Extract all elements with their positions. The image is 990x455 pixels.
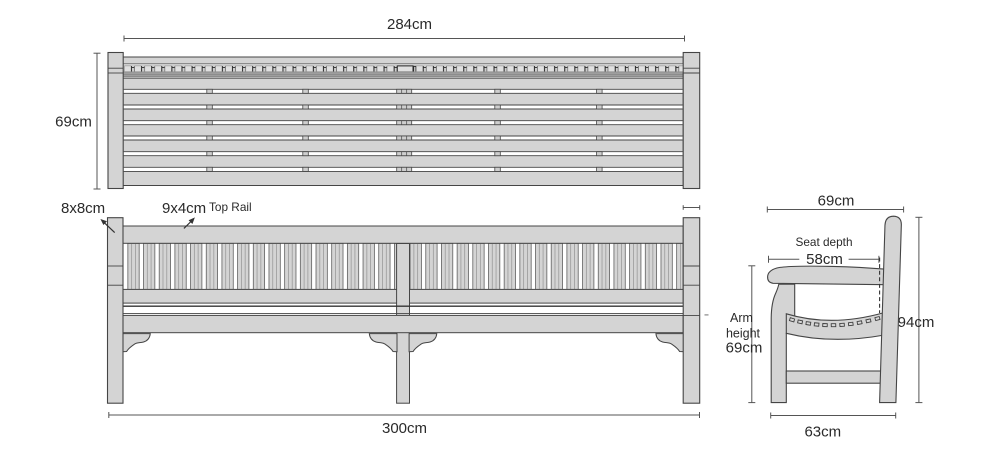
- svg-text:height: height: [726, 327, 761, 341]
- svg-text:Seat depth: Seat depth: [795, 235, 852, 249]
- svg-text:300cm: 300cm: [382, 420, 427, 437]
- svg-text:9x4cm: 9x4cm: [162, 200, 206, 217]
- svg-text:63cm: 63cm: [804, 424, 841, 441]
- svg-text:69cm: 69cm: [55, 114, 92, 131]
- svg-text:Arm: Arm: [730, 311, 753, 325]
- svg-text:69cm: 69cm: [818, 193, 855, 210]
- svg-text:94cm: 94cm: [898, 314, 935, 331]
- svg-text:284cm: 284cm: [387, 16, 432, 33]
- svg-text:Top Rail: Top Rail: [209, 200, 252, 214]
- svg-text:69cm: 69cm: [726, 340, 763, 357]
- svg-text:58cm: 58cm: [806, 251, 843, 268]
- svg-text:8x8cm: 8x8cm: [61, 200, 105, 217]
